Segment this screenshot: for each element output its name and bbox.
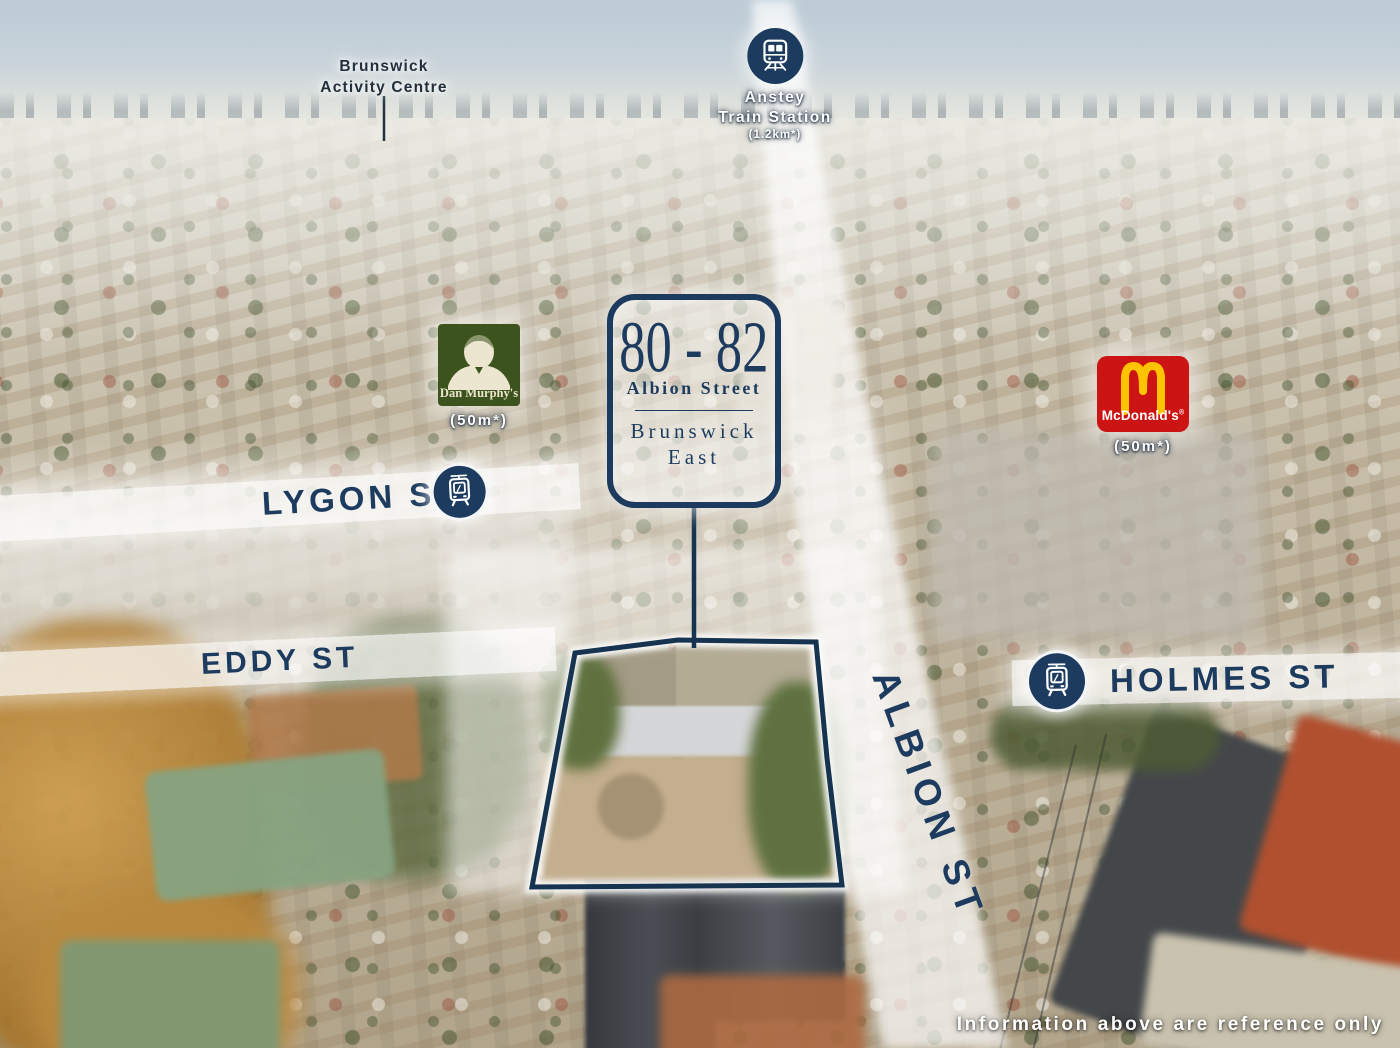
suburb-line1: Brunswick [631, 418, 758, 444]
street-label-holmes: HOLMES ST [1110, 657, 1339, 700]
mcdonalds-carpark-block [930, 430, 1260, 640]
green-metal-roof [60, 940, 280, 1048]
activity-centre-label: Brunswick Activity Centre [320, 57, 447, 99]
train-station-distance: (1.2km*) [718, 128, 831, 143]
holmes-street-band: HOLMES ST [1012, 652, 1400, 706]
mcdonalds-wordmark: McDonald's® [1097, 408, 1189, 423]
terracotta-roof [660, 975, 865, 1048]
street-label-eddy: EDDY ST [200, 641, 359, 682]
suburb-line2: East [631, 444, 758, 470]
mcdonalds-logo: McDonald's® [1097, 356, 1189, 432]
train-station-badge: Anstey Train Station (1.2km*) [718, 28, 831, 143]
property-address-badge: 80 - 82 Albion Street Brunswick East [607, 294, 781, 508]
dan-murphys-distance: (50m*) [450, 412, 508, 429]
train-station-line2: Train Station [718, 108, 831, 128]
tram-icon [1036, 657, 1079, 705]
activity-centre-line2: Activity Centre [320, 78, 447, 99]
disclaimer-text: Information above are reference only [957, 1014, 1384, 1036]
tram-icon [438, 468, 480, 515]
street-number: 80 - 82 [619, 308, 768, 388]
train-icon [755, 34, 795, 79]
green-metal-roof [144, 748, 396, 902]
train-station-label: Anstey Train Station (1.2km*) [718, 88, 831, 143]
registered-mark: ® [1179, 410, 1184, 417]
activity-centre-line1: Brunswick [320, 57, 447, 78]
train-station-line1: Anstey [718, 88, 831, 108]
aerial-property-marketing-image: LYGON ST EDDY ST [0, 0, 1400, 1048]
site-trees [748, 682, 848, 892]
suburb-name: Brunswick East [631, 418, 758, 471]
tram-stop-badge [429, 461, 490, 522]
tram-stop-badge [1025, 650, 1088, 713]
dan-murphys-wordmark: Dan Murphy's [438, 386, 520, 401]
badge-divider [635, 410, 753, 411]
dan-murphys-logo: Dan Murphy's [438, 324, 520, 406]
mcdonalds-distance: (50m*) [1114, 438, 1172, 455]
train-station-circle [747, 28, 803, 84]
